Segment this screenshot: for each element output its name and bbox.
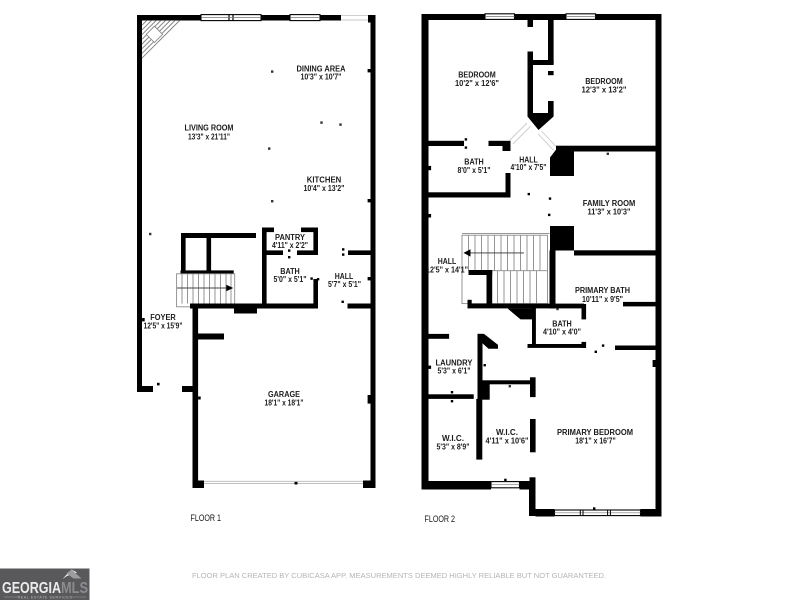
svg-text:HALL: HALL <box>438 256 457 266</box>
svg-text:18'1" x 18'1": 18'1" x 18'1" <box>265 399 304 408</box>
svg-text:5'3" x 6'1": 5'3" x 6'1" <box>438 367 471 376</box>
svg-text:13'3" x 21'11": 13'3" x 21'11" <box>188 132 230 141</box>
svg-text:4'10" x 7'5": 4'10" x 7'5" <box>511 163 547 172</box>
svg-text:11'3" x 10'3": 11'3" x 10'3" <box>588 207 631 216</box>
svg-text:4'10" x 4'0": 4'10" x 4'0" <box>543 327 581 336</box>
svg-text:12'5" x 15'9": 12'5" x 15'9" <box>144 322 183 331</box>
svg-text:12'5" x 14'1": 12'5" x 14'1" <box>426 266 468 275</box>
svg-text:BATH: BATH <box>464 156 484 166</box>
svg-text:5'7" x 5'1": 5'7" x 5'1" <box>328 280 361 289</box>
svg-text:FLOOR 1: FLOOR 1 <box>191 513 222 524</box>
svg-text:LIVING ROOM: LIVING ROOM <box>185 123 234 133</box>
svg-text:5'0" x 5'1": 5'0" x 5'1" <box>274 275 307 284</box>
svg-text:4'11" x 10'6": 4'11" x 10'6" <box>486 437 529 446</box>
svg-text:18'1" x 16'7": 18'1" x 16'7" <box>575 437 616 446</box>
svg-text:8'0" x 5'1": 8'0" x 5'1" <box>458 166 491 175</box>
svg-text:4'11" x 2'2": 4'11" x 2'2" <box>272 241 308 250</box>
svg-text:REAL ESTATE SERVICES: REAL ESTATE SERVICES <box>18 595 73 599</box>
svg-text:FLOOR 2: FLOOR 2 <box>425 514 456 525</box>
svg-text:W.I.C.: W.I.C. <box>442 433 464 443</box>
svg-text:10'3" x 10'7": 10'3" x 10'7" <box>301 73 342 82</box>
svg-text:10'4" x 13'2": 10'4" x 13'2" <box>304 184 345 193</box>
svg-text:PRIMARY BATH: PRIMARY BATH <box>575 285 630 295</box>
svg-text:FOYER: FOYER <box>150 312 176 322</box>
svg-text:FLOOR PLAN CREATED BY CUBICASA: FLOOR PLAN CREATED BY CUBICASA APP. MEAS… <box>192 571 606 580</box>
svg-text:5'3" x 8'9": 5'3" x 8'9" <box>437 443 470 452</box>
svg-text:10'2" x 12'6": 10'2" x 12'6" <box>455 79 499 88</box>
svg-text:10'11" x 9'5": 10'11" x 9'5" <box>582 295 623 304</box>
svg-text:12'3" x 13'2": 12'3" x 13'2" <box>582 85 627 94</box>
svg-text:W.I.C.: W.I.C. <box>496 427 518 437</box>
